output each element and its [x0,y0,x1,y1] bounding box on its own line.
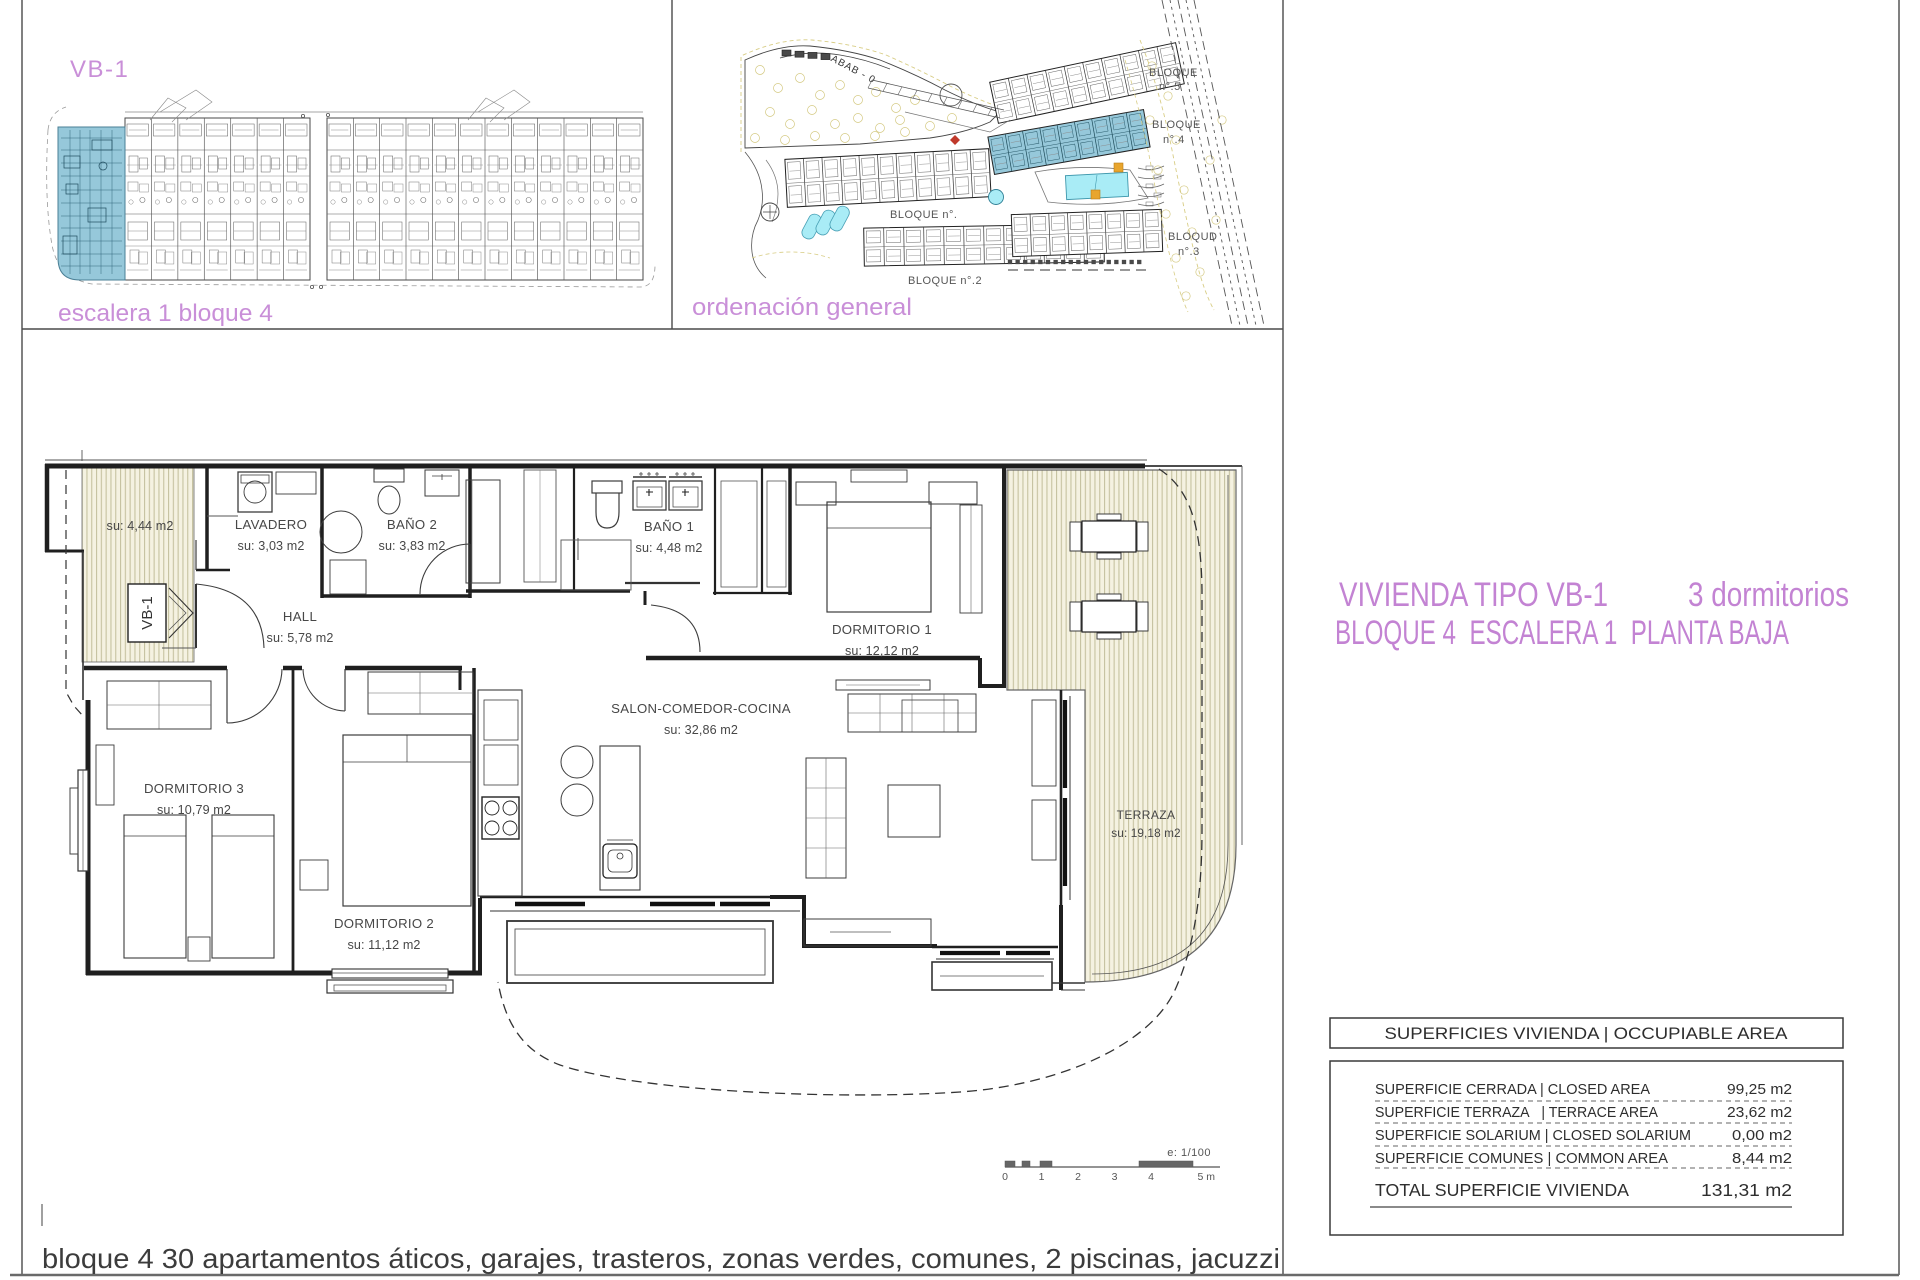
svg-text:SUPERFICIE CERRADA | CLOSED AR: SUPERFICIE CERRADA | CLOSED AREA [1375,1082,1650,1098]
svg-text:su: 19,18 m2: su: 19,18 m2 [1111,826,1180,840]
svg-text:BLOQUE n°.: BLOQUE n°. [890,209,957,221]
svg-text:su: 32,86 m2: su: 32,86 m2 [664,723,738,737]
svg-text:BAÑO 2: BAÑO 2 [387,517,437,532]
svg-text:su: 12,12 m2: su: 12,12 m2 [845,644,919,658]
svg-text:0,00 m2: 0,00 m2 [1732,1128,1792,1144]
svg-text:131,31 m2: 131,31 m2 [1701,1180,1792,1200]
svg-text:bloque 4 30 apartamentos ático: bloque 4 30 apartamentos áticos, garajes… [42,1243,1280,1274]
svg-text:DORMITORIO 3: DORMITORIO 3 [144,781,244,796]
svg-text:VIVIENDA TIPO VB-1: VIVIENDA TIPO VB-1 [1339,576,1608,614]
svg-text:BLOQUE: BLOQUE [1152,119,1201,131]
svg-text:su: 5,78 m2: su: 5,78 m2 [267,631,334,645]
svg-text:LAVADERO: LAVADERO [235,517,307,532]
svg-text:TERRAZA: TERRAZA [1117,808,1176,822]
svg-text:2: 2 [1075,1171,1081,1183]
svg-text:su: 3,03 m2: su: 3,03 m2 [238,539,305,553]
svg-text:su: 4,48 m2: su: 4,48 m2 [636,541,703,555]
svg-text:su: 4,44 m2: su: 4,44 m2 [107,519,174,533]
svg-text:su: 3,83 m2: su: 3,83 m2 [379,539,446,553]
svg-text:5 m: 5 m [1197,1171,1215,1183]
svg-text:SUPERFICIE TERRAZA | TERRACE: SUPERFICIE TERRAZA | TERRACE AREA [1375,1105,1658,1121]
svg-text:0: 0 [1002,1171,1008,1183]
svg-text:TOTAL SUPERFICIE VIVIENDA: TOTAL SUPERFICIE VIVIENDA [1375,1180,1629,1200]
svg-text:BLOQUE: BLOQUE [1149,67,1198,79]
svg-text:BLOQUD: BLOQUD [1168,231,1217,243]
svg-text:BLOQUE 4 ESCALERA 1 PLANTA B: BLOQUE 4 ESCALERA 1 PLANTA BAJA [1335,614,1789,652]
svg-text:BAÑO 1: BAÑO 1 [644,519,694,534]
svg-text:n°.4: n°.4 [1163,134,1185,146]
svg-text:e: 1/100: e: 1/100 [1167,1147,1211,1159]
svg-text:SUPERFICIE SOLARIUM | CLOSED S: SUPERFICIE SOLARIUM | CLOSED SOLARIUM [1375,1128,1691,1144]
svg-text:DORMITORIO 1: DORMITORIO 1 [832,622,932,637]
svg-text:99,25 m2: 99,25 m2 [1727,1082,1792,1098]
svg-text:VB-1: VB-1 [139,596,156,629]
svg-text:n°.5: n°.5 [1159,81,1181,93]
svg-text:SUPERFICIES VIVIENDA | OCCUPIA: SUPERFICIES VIVIENDA | OCCUPIABLE AREA [1385,1024,1789,1043]
svg-text:VB-1: VB-1 [70,56,129,83]
svg-text:3: 3 [1112,1171,1118,1183]
svg-text:DORMITORIO 2: DORMITORIO 2 [334,916,434,931]
svg-text:su: 11,12 m2: su: 11,12 m2 [347,938,420,952]
svg-text:8,44 m2: 8,44 m2 [1732,1151,1792,1167]
svg-text:1: 1 [1039,1171,1045,1183]
svg-text:HALL: HALL [283,609,317,624]
svg-text:n°.3: n°.3 [1178,246,1200,258]
svg-text:su: 10,79 m2: su: 10,79 m2 [157,803,231,817]
svg-text:SALON-COMEDOR-COCINA: SALON-COMEDOR-COCINA [611,701,791,716]
svg-text:ordenación general: ordenación general [692,294,912,321]
svg-text:BLOQUE n°.2: BLOQUE n°.2 [908,275,982,287]
svg-text:escalera 1 bloque 4: escalera 1 bloque 4 [58,300,273,327]
svg-text:SUPERFICIE COMUNES | COMMON AR: SUPERFICIE COMUNES | COMMON AREA [1375,1151,1668,1167]
svg-text:23,62 m2: 23,62 m2 [1727,1105,1792,1121]
svg-text:4: 4 [1148,1171,1154,1183]
svg-text:3 dormitorios: 3 dormitorios [1688,576,1849,614]
